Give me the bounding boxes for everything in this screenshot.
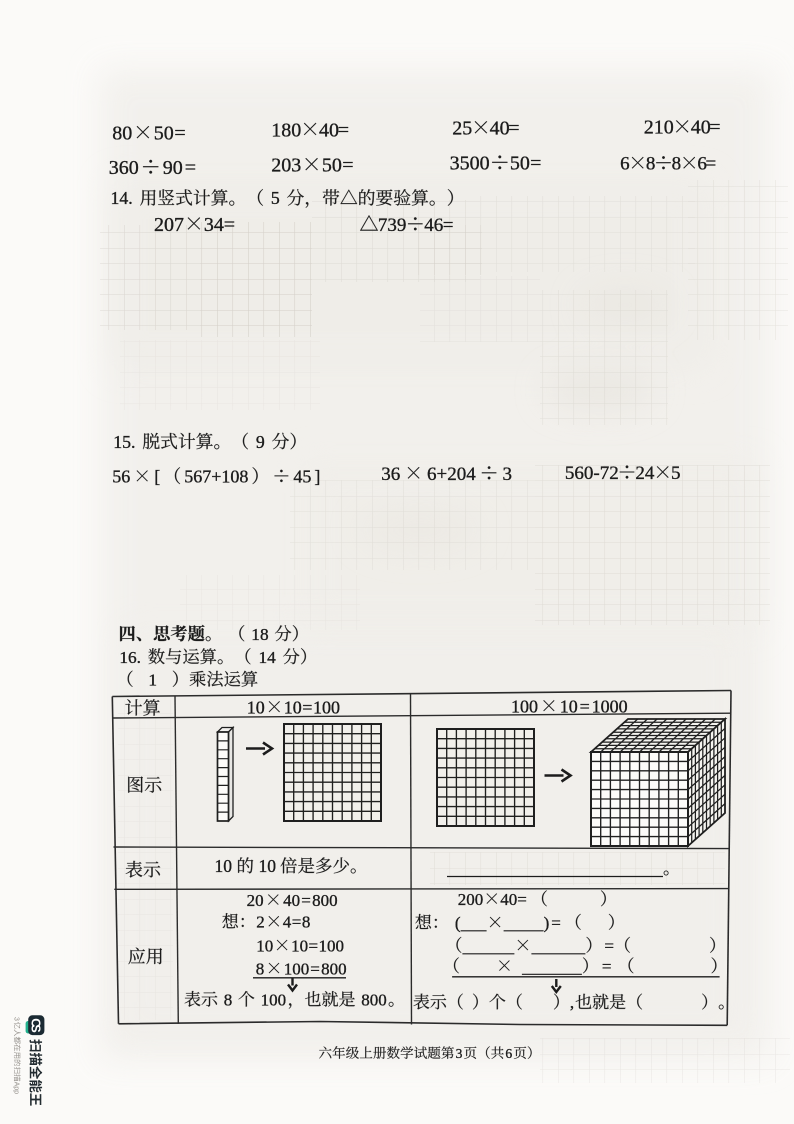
svg-text:=: = — [530, 153, 541, 175]
svg-text:=: = — [551, 913, 561, 932]
svg-text:10: 10 — [259, 856, 277, 876]
svg-text:56: 56 — [112, 467, 130, 487]
svg-text:36: 36 — [381, 464, 400, 485]
svg-text:800: 800 — [312, 891, 338, 910]
svg-text:=: = — [517, 890, 527, 909]
svg-text:18: 18 — [251, 625, 268, 644]
svg-text:=: = — [185, 157, 196, 179]
svg-text:=: = — [174, 123, 185, 145]
svg-text:360: 360 — [109, 157, 139, 179]
svg-text:=: = — [508, 118, 519, 140]
svg-text:1: 1 — [148, 670, 157, 689]
svg-text:8: 8 — [256, 959, 264, 978]
svg-text:207: 207 — [154, 214, 184, 236]
svg-text:10: 10 — [247, 697, 265, 717]
svg-text:100: 100 — [261, 990, 287, 1009]
svg-text:10: 10 — [284, 697, 302, 717]
svg-text:8: 8 — [302, 913, 311, 932]
svg-text:4: 4 — [283, 913, 292, 932]
svg-text:16.: 16. — [119, 648, 141, 667]
svg-text:,: , — [570, 993, 574, 1012]
svg-text:10: 10 — [291, 936, 308, 955]
svg-text:10: 10 — [215, 856, 233, 876]
svg-text:=: = — [292, 913, 302, 932]
svg-text:203: 203 — [271, 155, 301, 177]
svg-text:40: 40 — [319, 119, 339, 141]
svg-text:5: 5 — [671, 463, 681, 484]
svg-text:100: 100 — [511, 696, 538, 716]
svg-text:8: 8 — [672, 154, 682, 175]
svg-text:25: 25 — [452, 118, 472, 140]
svg-text:App: App — [13, 1082, 20, 1095]
svg-text:8: 8 — [646, 154, 656, 175]
svg-text:9: 9 — [256, 432, 265, 452]
svg-text:24: 24 — [635, 463, 655, 484]
svg-text:50: 50 — [154, 123, 174, 145]
svg-text:[: [ — [154, 467, 160, 487]
svg-text:20: 20 — [247, 891, 264, 910]
svg-text:34: 34 — [204, 214, 224, 236]
svg-text:6: 6 — [505, 1046, 512, 1061]
svg-text:=: = — [302, 697, 312, 717]
svg-text:800: 800 — [361, 990, 387, 1009]
svg-text:15.: 15. — [113, 432, 135, 452]
svg-text:6: 6 — [620, 154, 630, 175]
svg-text:=: = — [706, 154, 717, 175]
svg-text:8: 8 — [224, 990, 233, 1009]
svg-text:): ) — [544, 913, 550, 932]
svg-text:80: 80 — [112, 123, 132, 145]
svg-text:180: 180 — [271, 119, 301, 141]
svg-text:3: 3 — [503, 464, 513, 485]
svg-text:10: 10 — [560, 696, 578, 716]
svg-text:6+204: 6+204 — [427, 464, 476, 485]
svg-text:50: 50 — [510, 153, 530, 175]
svg-text:100: 100 — [284, 959, 310, 978]
svg-text:2: 2 — [256, 913, 265, 932]
svg-text:200: 200 — [458, 890, 484, 909]
svg-text:10: 10 — [256, 936, 273, 955]
svg-text:40: 40 — [500, 890, 517, 909]
svg-text:50: 50 — [322, 155, 342, 177]
svg-text:3: 3 — [456, 1046, 463, 1061]
svg-text:=: = — [709, 117, 720, 139]
svg-text:45: 45 — [293, 467, 311, 487]
svg-text:14.: 14. — [111, 188, 133, 208]
svg-text:100: 100 — [319, 936, 345, 955]
svg-text:567+108: 567+108 — [184, 467, 248, 487]
svg-text:]: ] — [314, 467, 320, 487]
svg-text:=: = — [342, 155, 353, 177]
svg-text:=: = — [224, 214, 235, 236]
svg-text:=: = — [309, 936, 319, 955]
svg-text:560-72: 560-72 — [565, 463, 619, 484]
svg-text:=: = — [301, 891, 311, 910]
svg-text:739: 739 — [378, 215, 407, 236]
svg-text:210: 210 — [644, 117, 674, 139]
svg-text:14: 14 — [259, 648, 277, 667]
svg-text:40: 40 — [691, 117, 711, 139]
svg-text:=: = — [580, 696, 590, 716]
svg-text:(: ( — [455, 913, 461, 932]
svg-text:=: = — [310, 959, 320, 978]
svg-text:3: 3 — [13, 1017, 20, 1021]
svg-text:=: = — [443, 215, 454, 236]
svg-text:40: 40 — [490, 118, 510, 140]
svg-text:3500: 3500 — [450, 153, 490, 175]
svg-text:1000: 1000 — [592, 696, 628, 716]
svg-text:5: 5 — [271, 188, 280, 208]
svg-text:CS: CS — [28, 1018, 42, 1032]
svg-text:800: 800 — [321, 959, 347, 978]
svg-text:=: = — [604, 936, 614, 955]
svg-text:46: 46 — [424, 215, 443, 236]
svg-text:=: = — [338, 119, 349, 141]
svg-text:90: 90 — [163, 157, 183, 179]
svg-text:=: = — [602, 957, 612, 976]
svg-text:40: 40 — [283, 891, 300, 910]
svg-text:100: 100 — [313, 697, 340, 717]
